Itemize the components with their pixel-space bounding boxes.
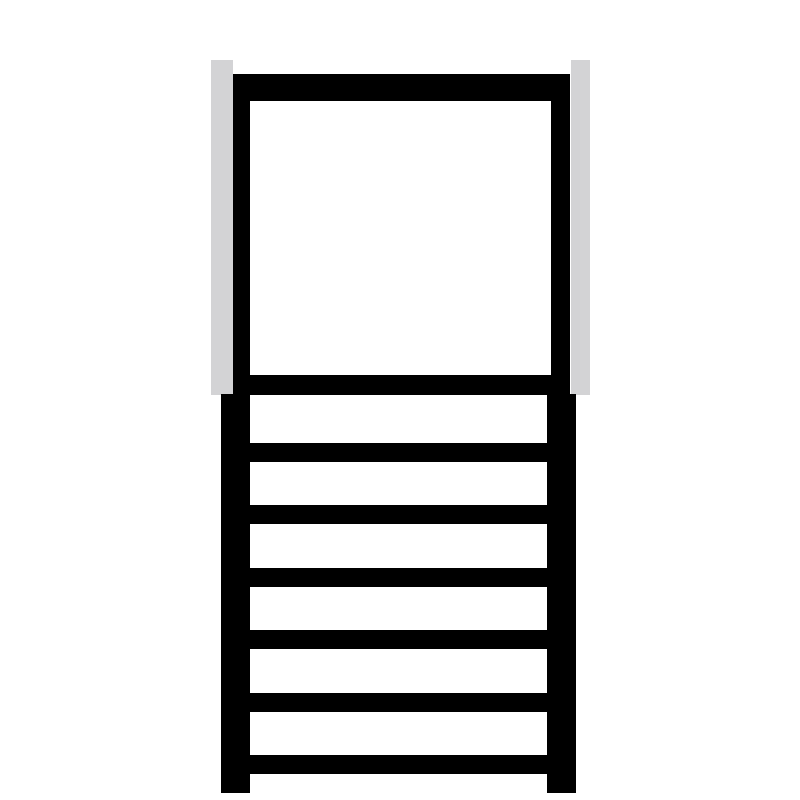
ladder-rung [250, 505, 547, 524]
illustration-canvas [0, 0, 800, 800]
right-gray-post [571, 60, 590, 395]
ladder-rung [250, 568, 547, 587]
left-ladder-rail [221, 394, 250, 793]
ladder-rung [250, 630, 547, 649]
left-gray-post [211, 60, 233, 395]
ladder-rung [250, 443, 547, 462]
ladder-rung [250, 693, 547, 712]
square-frame [233, 74, 570, 395]
right-ladder-rail [547, 394, 576, 793]
ladder-rung [250, 755, 547, 774]
